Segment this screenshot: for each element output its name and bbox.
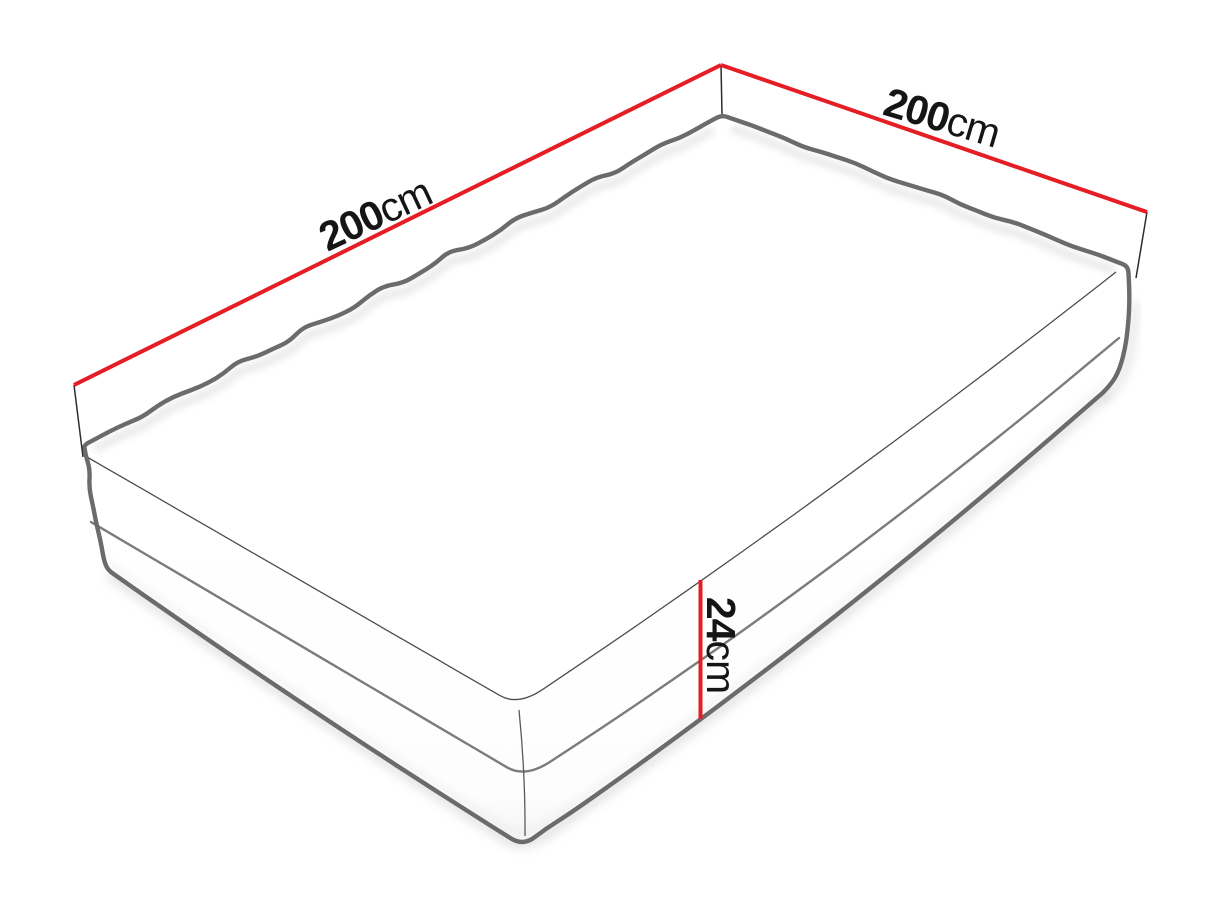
svg-text:24cm: 24cm <box>698 597 744 693</box>
